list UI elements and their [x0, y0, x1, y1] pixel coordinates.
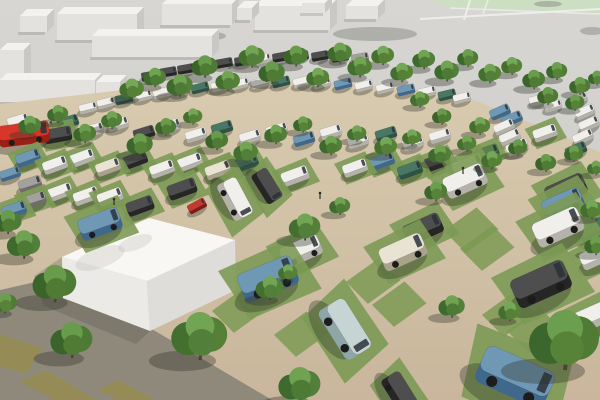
campervan-park-render	[0, 0, 600, 400]
building-block	[160, 0, 239, 28]
road-patch	[333, 27, 417, 41]
road-patch	[534, 1, 562, 7]
render-canvas	[0, 0, 600, 400]
building-block	[90, 29, 219, 60]
